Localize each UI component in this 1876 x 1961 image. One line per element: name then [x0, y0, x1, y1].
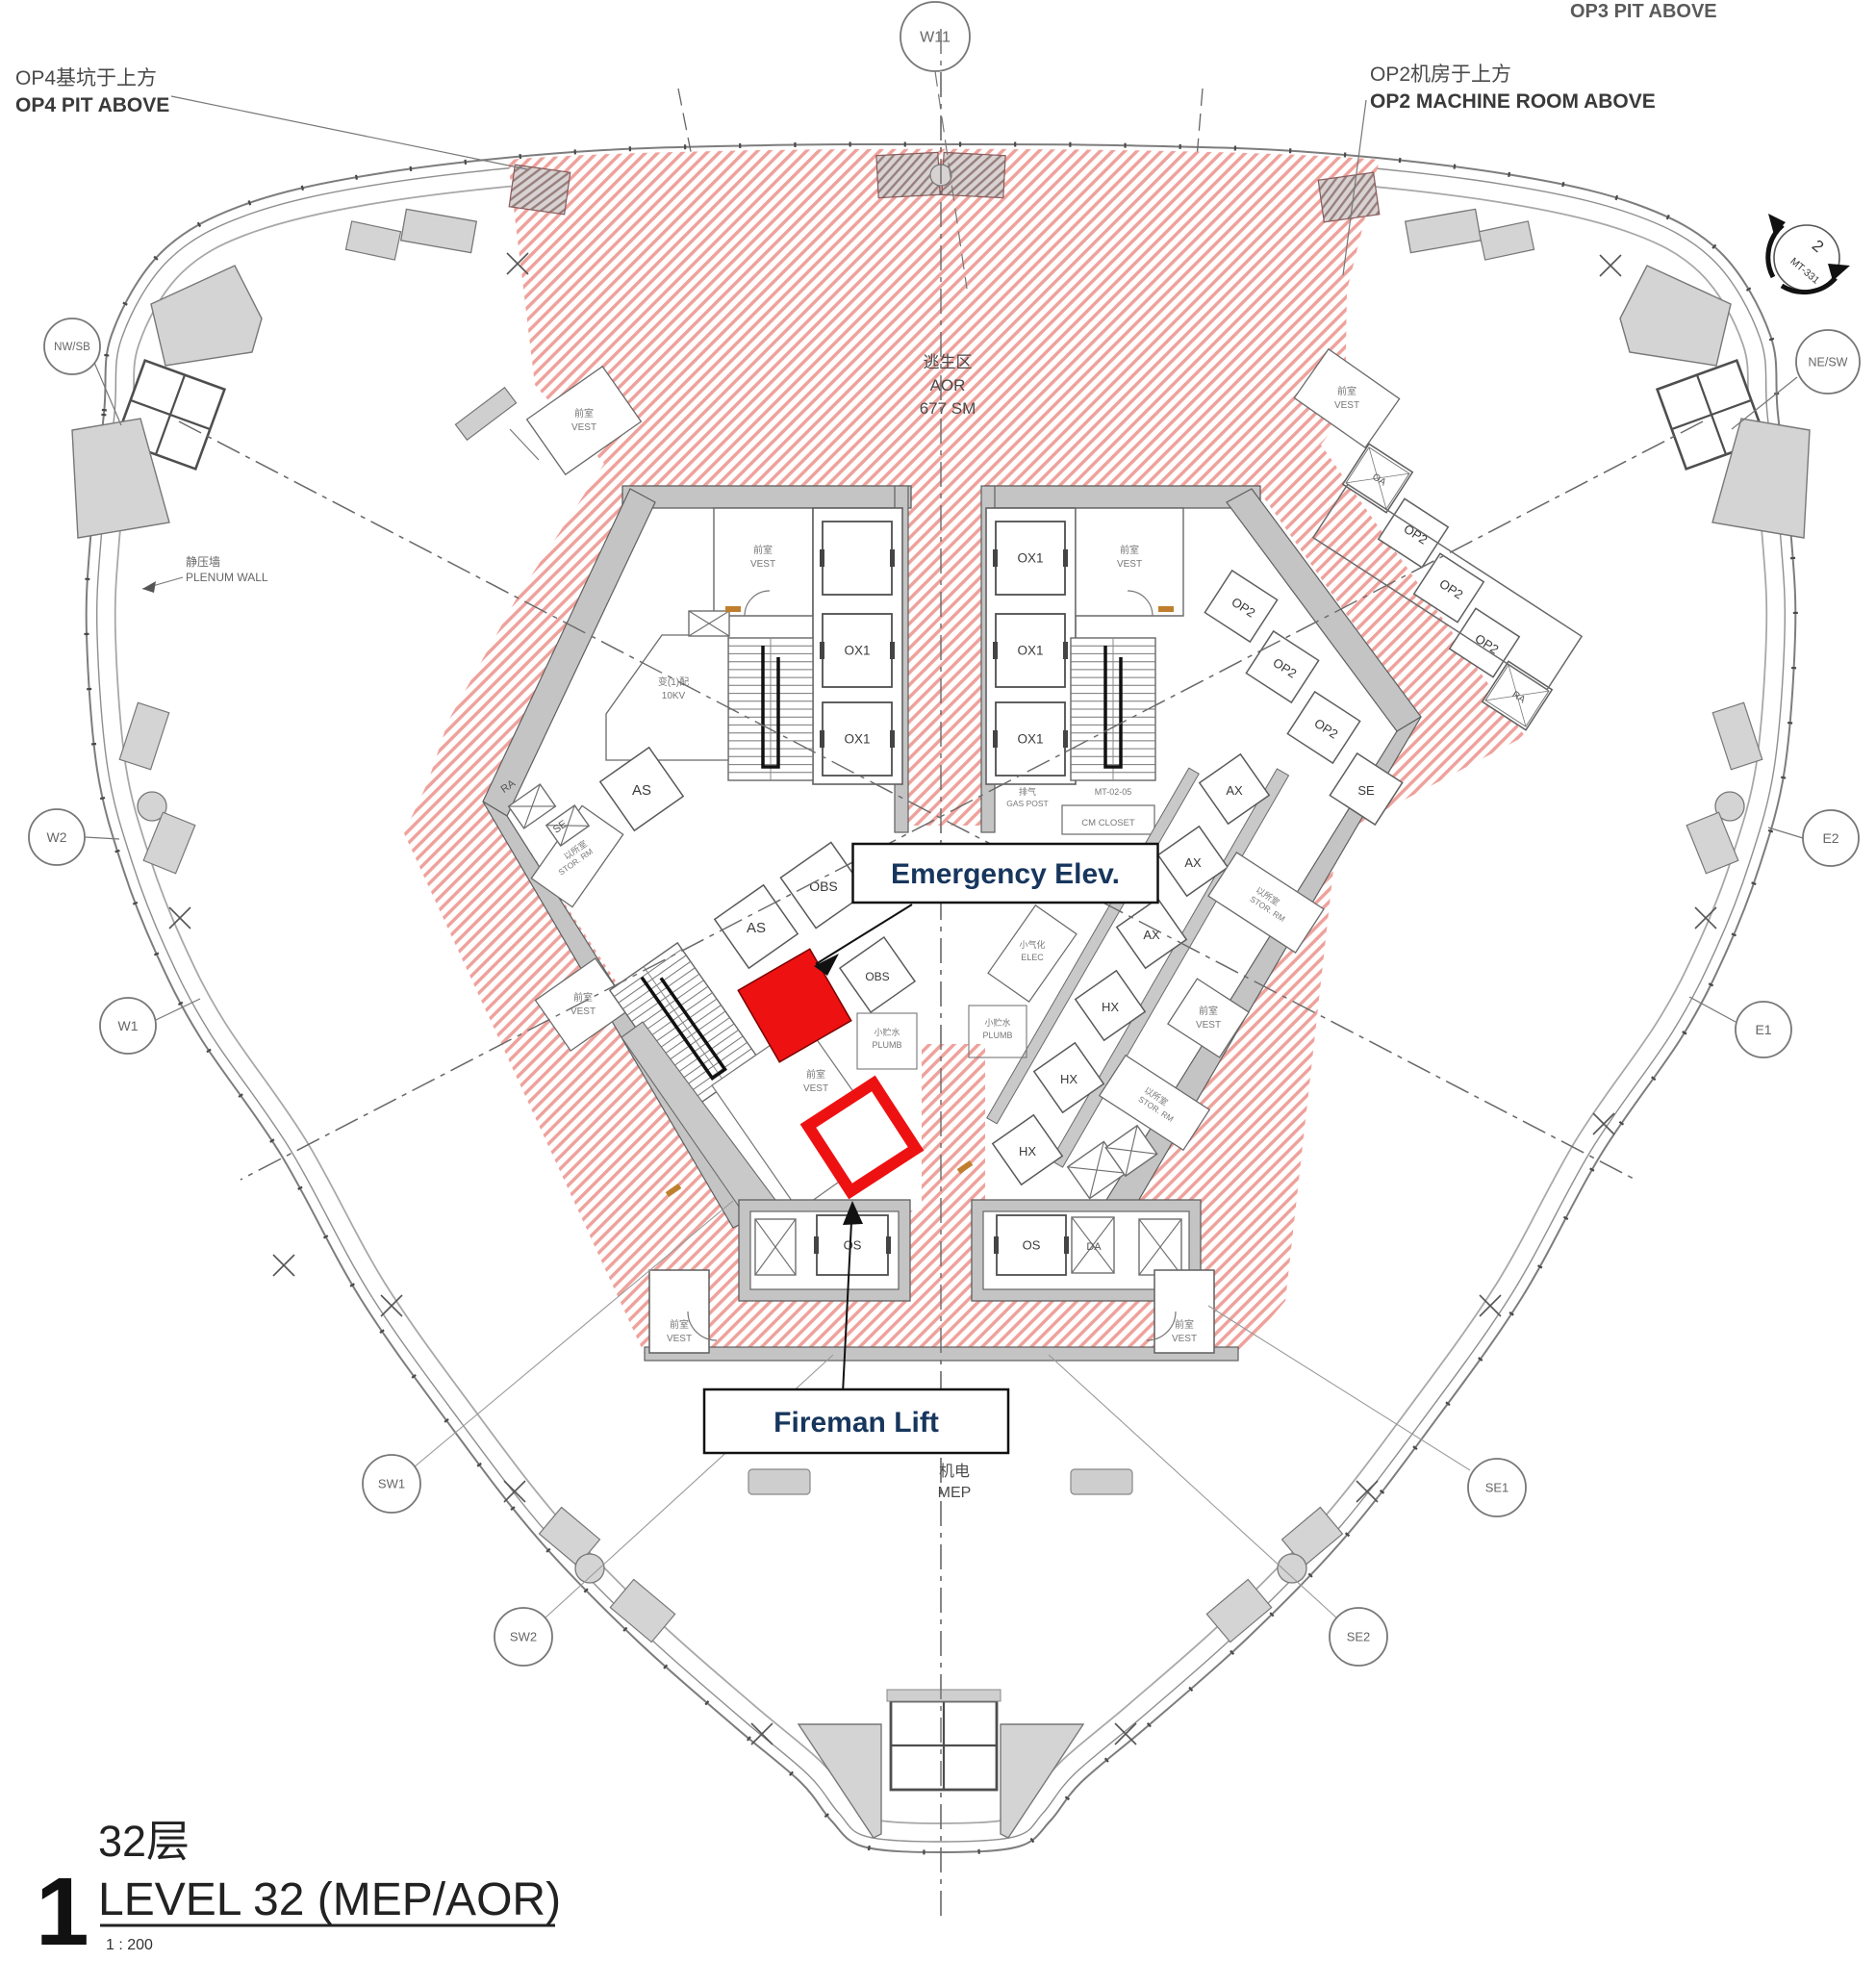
svg-text:LEVEL 32 (MEP/AOR): LEVEL 32 (MEP/AOR) — [98, 1874, 561, 1925]
svg-text:SE2: SE2 — [1347, 1630, 1371, 1644]
svg-text:VEST: VEST — [803, 1083, 828, 1094]
svg-text:VEST: VEST — [750, 559, 775, 570]
svg-text:DA: DA — [1086, 1241, 1102, 1253]
svg-text:PLENUM WALL: PLENUM WALL — [186, 571, 268, 584]
svg-text:W2: W2 — [47, 829, 67, 845]
svg-text:前室: 前室 — [1337, 385, 1356, 397]
svg-text:排气: 排气 — [1019, 786, 1036, 797]
svg-text:1: 1 — [36, 1858, 89, 1961]
svg-text:SE: SE — [1357, 783, 1375, 798]
svg-text:OBS: OBS — [865, 970, 889, 983]
svg-text:变(1)配: 变(1)配 — [658, 675, 689, 688]
svg-text:OS: OS — [844, 1238, 862, 1253]
svg-text:VEST: VEST — [1117, 559, 1142, 570]
svg-text:SW2: SW2 — [510, 1630, 537, 1644]
svg-text:OX1: OX1 — [844, 644, 870, 658]
svg-text:PLUMB: PLUMB — [982, 1031, 1012, 1040]
svg-text:OX1: OX1 — [844, 732, 870, 747]
svg-text:MEP: MEP — [938, 1485, 972, 1501]
svg-text:VEST: VEST — [1196, 1020, 1221, 1031]
svg-text:AS: AS — [632, 782, 651, 799]
svg-text:OP3 PIT ABOVE: OP3 PIT ABOVE — [1570, 1, 1717, 22]
svg-text:前室: 前室 — [670, 1318, 689, 1331]
svg-text:机电: 机电 — [939, 1463, 970, 1480]
svg-text:VEST: VEST — [1172, 1334, 1197, 1344]
svg-text:32层: 32层 — [98, 1817, 190, 1866]
svg-text:GAS POST: GAS POST — [1006, 799, 1048, 808]
svg-text:OBS: OBS — [809, 879, 838, 894]
svg-text:W11: W11 — [920, 30, 951, 46]
svg-text:677 SM: 677 SM — [920, 399, 976, 418]
svg-text:OX1: OX1 — [1017, 732, 1043, 747]
svg-text:AX: AX — [1143, 928, 1160, 942]
svg-text:10KV: 10KV — [662, 691, 686, 701]
svg-text:AS: AS — [747, 920, 766, 936]
svg-text:OP4基坑于上方: OP4基坑于上方 — [15, 67, 157, 89]
svg-text:前室: 前室 — [1199, 1005, 1218, 1017]
svg-text:SE1: SE1 — [1485, 1481, 1509, 1495]
svg-text:MT-02-05: MT-02-05 — [1095, 787, 1132, 797]
svg-text:1 : 200: 1 : 200 — [106, 1937, 153, 1953]
svg-text:ELEC: ELEC — [1021, 953, 1044, 962]
svg-text:AX: AX — [1226, 783, 1243, 798]
svg-text:NW/SB: NW/SB — [54, 342, 90, 353]
svg-text:OP2机房于上方: OP2机房于上方 — [1370, 64, 1511, 86]
svg-text:Fireman Lift: Fireman Lift — [773, 1407, 939, 1439]
svg-text:CM CLOSET: CM CLOSET — [1081, 818, 1135, 828]
svg-text:VEST: VEST — [667, 1334, 692, 1344]
svg-text:小气化: 小气化 — [1019, 939, 1045, 950]
svg-text:HX: HX — [1060, 1072, 1077, 1086]
svg-text:W1: W1 — [118, 1018, 139, 1033]
svg-text:PLUMB: PLUMB — [872, 1040, 901, 1050]
svg-text:SW1: SW1 — [378, 1477, 405, 1491]
svg-text:前室: 前室 — [1120, 544, 1139, 556]
svg-text:前室: 前室 — [753, 544, 773, 556]
svg-text:OX1: OX1 — [1017, 551, 1043, 566]
svg-text:前室: 前室 — [574, 407, 594, 420]
svg-text:VEST: VEST — [571, 422, 596, 433]
svg-text:OP4 PIT ABOVE: OP4 PIT ABOVE — [15, 94, 169, 116]
svg-text:E1: E1 — [1755, 1022, 1771, 1037]
svg-text:静压墙: 静压墙 — [186, 555, 220, 569]
svg-text:AOR: AOR — [930, 376, 966, 395]
svg-text:小贮水: 小贮水 — [984, 1017, 1010, 1028]
svg-text:前室: 前室 — [1175, 1318, 1194, 1331]
svg-text:E2: E2 — [1822, 830, 1838, 846]
svg-text:OS: OS — [1023, 1238, 1041, 1253]
svg-text:AX: AX — [1184, 855, 1202, 870]
svg-text:VEST: VEST — [570, 1006, 596, 1017]
svg-text:HX: HX — [1019, 1144, 1036, 1159]
svg-text:OX1: OX1 — [1017, 644, 1043, 658]
svg-text:VEST: VEST — [1334, 400, 1359, 411]
svg-text:Emergency Elev.: Emergency Elev. — [891, 858, 1120, 890]
svg-text:HX: HX — [1102, 1000, 1119, 1014]
svg-text:前室: 前室 — [806, 1068, 825, 1081]
svg-text:OP2 MACHINE ROOM ABOVE: OP2 MACHINE ROOM ABOVE — [1370, 90, 1656, 113]
svg-text:小贮水: 小贮水 — [874, 1027, 900, 1037]
svg-text:逃生区: 逃生区 — [924, 353, 973, 371]
svg-text:NE/SW: NE/SW — [1809, 355, 1848, 369]
